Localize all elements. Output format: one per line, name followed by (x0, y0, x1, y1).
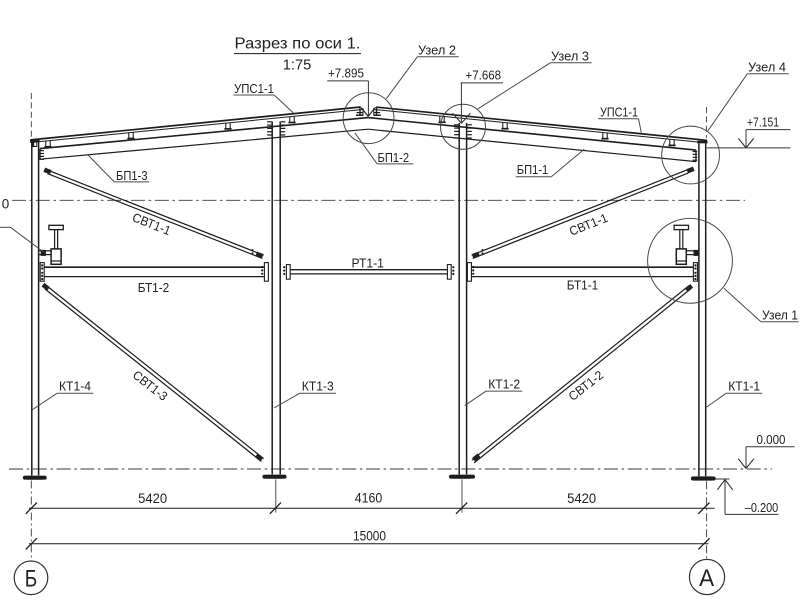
svg-text:БП1-3: БП1-3 (116, 168, 148, 183)
svg-text:+7.895: +7.895 (328, 65, 364, 80)
svg-text:КТ1-3: КТ1-3 (302, 379, 334, 394)
svg-text:КТ1-4: КТ1-4 (59, 379, 91, 394)
svg-text:КТ1-1: КТ1-1 (728, 379, 760, 394)
svg-text:0: 0 (2, 197, 10, 212)
svg-text:+7.151: +7.151 (747, 114, 779, 129)
svg-text:0.000: 0.000 (757, 432, 786, 447)
svg-text:15000: 15000 (353, 529, 386, 544)
svg-text:Узел 3: Узел 3 (551, 48, 589, 63)
svg-text:Узел 4: Узел 4 (748, 59, 786, 74)
svg-text:Б: Б (25, 566, 38, 593)
svg-text:5420: 5420 (567, 491, 596, 506)
svg-text:БП1-1: БП1-1 (517, 162, 549, 177)
svg-text:5420: 5420 (138, 491, 167, 506)
svg-text:БТ1-1: БТ1-1 (567, 278, 599, 293)
svg-text:4160: 4160 (355, 491, 383, 506)
svg-text:1:75: 1:75 (283, 56, 312, 73)
svg-text:КТ1-2: КТ1-2 (488, 376, 520, 391)
svg-text:БП1-2: БП1-2 (378, 150, 410, 165)
svg-text:БТ1-2: БТ1-2 (138, 280, 170, 295)
svg-text:–0.200: –0.200 (745, 500, 779, 515)
svg-text:УПС1-1: УПС1-1 (600, 105, 638, 120)
svg-text:РТ1-1: РТ1-1 (351, 255, 384, 270)
svg-text:Узел 2: Узел 2 (418, 42, 456, 57)
svg-text:А: А (699, 565, 715, 592)
svg-text:+7.668: +7.668 (466, 68, 502, 83)
svg-text:Узел 1: Узел 1 (762, 307, 798, 322)
svg-text:УПС1-1: УПС1-1 (234, 81, 274, 96)
svg-text:Разрез по оси 1.: Разрез по оси 1. (235, 35, 361, 52)
